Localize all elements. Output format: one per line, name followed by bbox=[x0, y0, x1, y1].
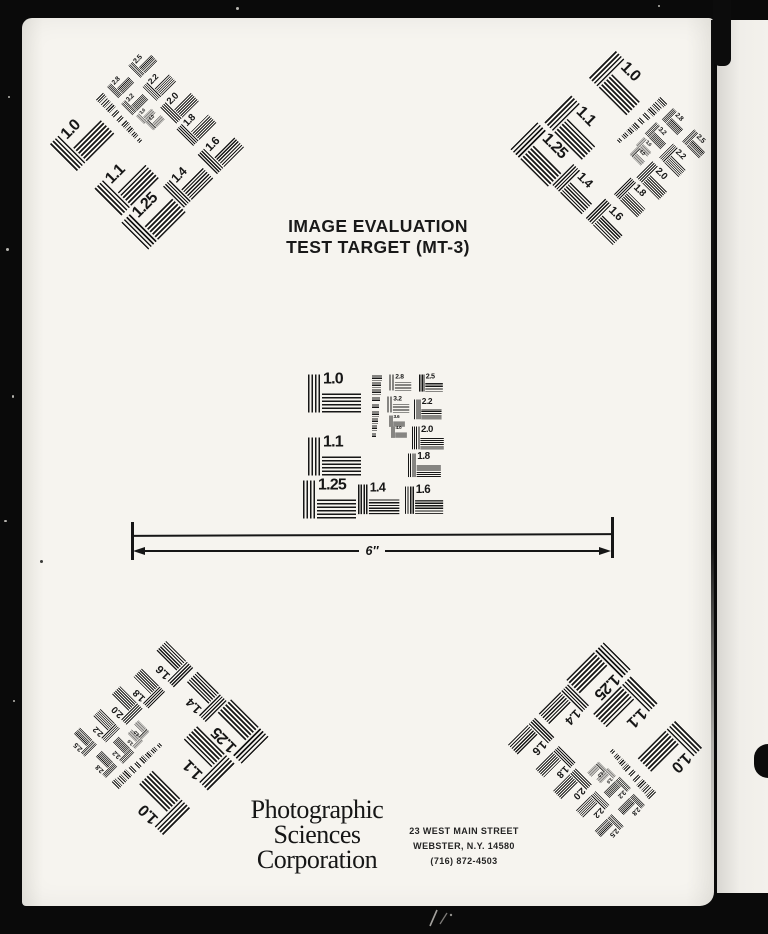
pattern-element-1.0: 1.0 bbox=[308, 375, 361, 413]
scan-speck bbox=[4, 520, 7, 522]
vertical-bars bbox=[412, 427, 420, 450]
horizontal-bars bbox=[369, 499, 399, 514]
pattern-element-1.8: 1.8 bbox=[408, 454, 441, 478]
horizontal-bars bbox=[317, 500, 356, 519]
horizontal-bars bbox=[425, 383, 443, 392]
handwritten-mark bbox=[424, 906, 458, 930]
pattern-element-1.6: 1.6 bbox=[405, 487, 443, 514]
company-line-2: Sciences bbox=[228, 822, 406, 847]
horizontal-bars bbox=[417, 465, 441, 477]
horizontal-bars bbox=[395, 432, 407, 438]
scan-speck bbox=[236, 7, 239, 10]
pattern-number: 2.2 bbox=[422, 398, 432, 406]
company-line-3: Corporation bbox=[228, 847, 406, 872]
vertical-bars bbox=[405, 487, 414, 514]
pattern-number: 2.2 bbox=[674, 148, 687, 161]
company-wordmark: Photographic Sciences Corporation bbox=[228, 797, 406, 872]
horizontal-bars bbox=[415, 500, 443, 514]
scale-bar: 6″ bbox=[131, 517, 614, 563]
scanned-test-target-page: IMAGE EVALUATION TEST TARGET (MT-3) 1.01… bbox=[0, 0, 768, 934]
vertical-bars bbox=[419, 375, 425, 392]
vertical-bars bbox=[303, 481, 316, 519]
pattern-element-4.0: 4.0 bbox=[391, 427, 407, 438]
vertical-bars bbox=[387, 397, 392, 413]
company-address: 23 WEST MAIN STREET WEBSTER, N.Y. 14580 … bbox=[403, 824, 525, 869]
address-line-2: WEBSTER, N.Y. 14580 bbox=[403, 839, 525, 854]
arrowhead-left-icon bbox=[133, 547, 145, 555]
pattern-element-2.2: 2.2 bbox=[414, 400, 442, 420]
vertical-bars bbox=[414, 400, 421, 420]
scale-line bbox=[133, 533, 611, 537]
pattern-number: 2.0 bbox=[421, 425, 433, 435]
pattern-element-1.1: 1.1 bbox=[308, 438, 361, 476]
pattern-number: 2.8 bbox=[395, 373, 403, 380]
horizontal-bars bbox=[421, 409, 441, 419]
scan-speck bbox=[13, 700, 15, 702]
pattern-element-2.0: 2.0 bbox=[412, 427, 444, 450]
title-line-2: TEST TARGET (MT-3) bbox=[258, 237, 498, 258]
scan-speck bbox=[12, 395, 14, 398]
page-speck bbox=[40, 560, 43, 563]
scan-speck bbox=[658, 5, 660, 7]
pattern-number: 1.1 bbox=[323, 435, 343, 451]
pattern-number: 4.0 bbox=[396, 426, 402, 431]
pattern-element-2.8: 2.8 bbox=[389, 375, 411, 391]
pattern-element-3.2: 3.2 bbox=[387, 397, 409, 413]
pattern-number: 2.5 bbox=[426, 373, 435, 380]
horizontal-bars bbox=[393, 404, 409, 412]
scan-speck bbox=[8, 96, 10, 98]
vertical-bars bbox=[389, 375, 394, 391]
pattern-element-1.4: 1.4 bbox=[358, 485, 399, 515]
company-line-1: Photographic bbox=[228, 797, 406, 822]
vertical-bars bbox=[308, 375, 321, 413]
page-title: IMAGE EVALUATION TEST TARGET (MT-3) bbox=[258, 216, 498, 258]
arrowhead-right-icon bbox=[599, 547, 611, 555]
address-line-1: 23 WEST MAIN STREET bbox=[403, 824, 525, 839]
title-line-1: IMAGE EVALUATION bbox=[258, 216, 498, 237]
vertical-bars bbox=[408, 454, 416, 478]
pattern-element-1.25: 1.25 bbox=[303, 481, 356, 519]
pattern-number: 1.6 bbox=[416, 484, 430, 496]
pattern-number: 1.25 bbox=[318, 478, 346, 494]
pattern-number: 1.0 bbox=[323, 372, 343, 388]
horizontal-bars bbox=[322, 457, 361, 476]
pattern-element-2.5: 2.5 bbox=[595, 814, 624, 843]
pattern-number: 3.6 bbox=[394, 415, 400, 420]
scan-speck bbox=[6, 248, 9, 251]
address-line-3: (716) 872-4503 bbox=[403, 854, 525, 869]
horizontal-bars bbox=[395, 382, 411, 390]
pattern-number: 1.4 bbox=[370, 482, 385, 494]
scale-length-label: 6″ bbox=[359, 544, 386, 558]
horizontal-bars bbox=[322, 394, 361, 413]
resolution-target-center: 1.01.11.251.41.61.82.02.22.52.83.23.64.0 bbox=[295, 366, 453, 521]
micro-resolution-strip bbox=[372, 376, 382, 438]
pattern-number: 1.8 bbox=[417, 452, 429, 462]
page-corner-shadow bbox=[713, 0, 731, 66]
pattern-number: 3.2 bbox=[393, 395, 401, 402]
scale-tick-right bbox=[611, 517, 614, 558]
vertical-bars bbox=[358, 485, 368, 515]
vertical-bars bbox=[308, 438, 321, 476]
pattern-element-2.5: 2.5 bbox=[419, 375, 443, 392]
horizontal-bars bbox=[420, 438, 443, 449]
scale-arrow: 6″ bbox=[133, 544, 611, 558]
